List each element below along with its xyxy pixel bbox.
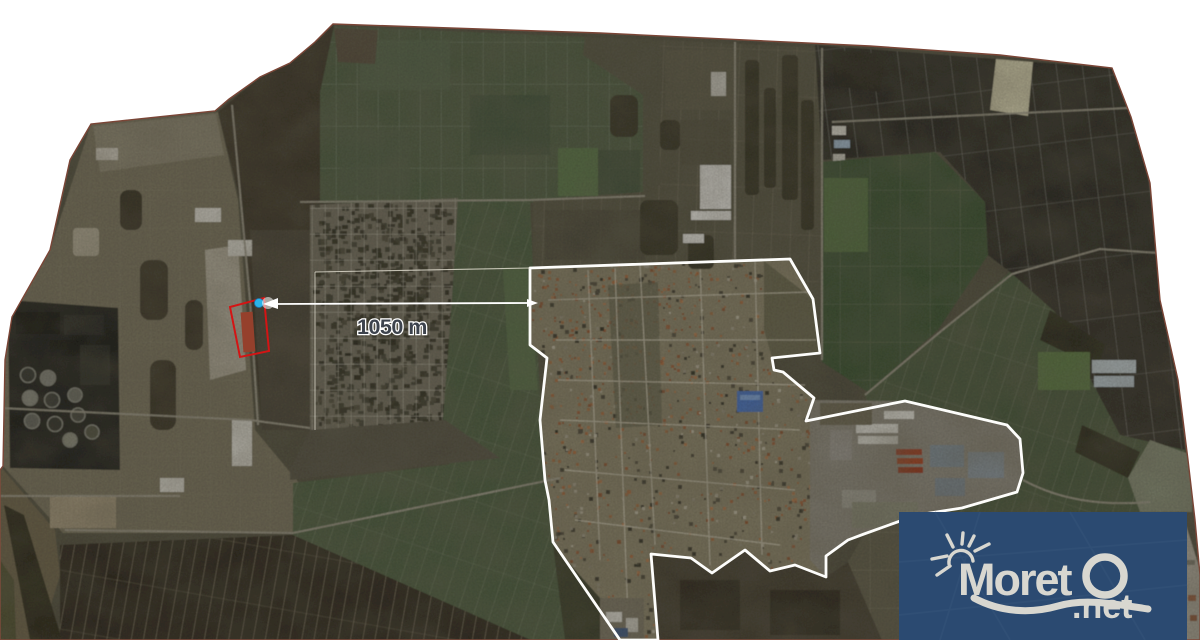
svg-text:1050 m: 1050 m (357, 315, 427, 339)
svg-text:.net: .net (1072, 588, 1132, 626)
